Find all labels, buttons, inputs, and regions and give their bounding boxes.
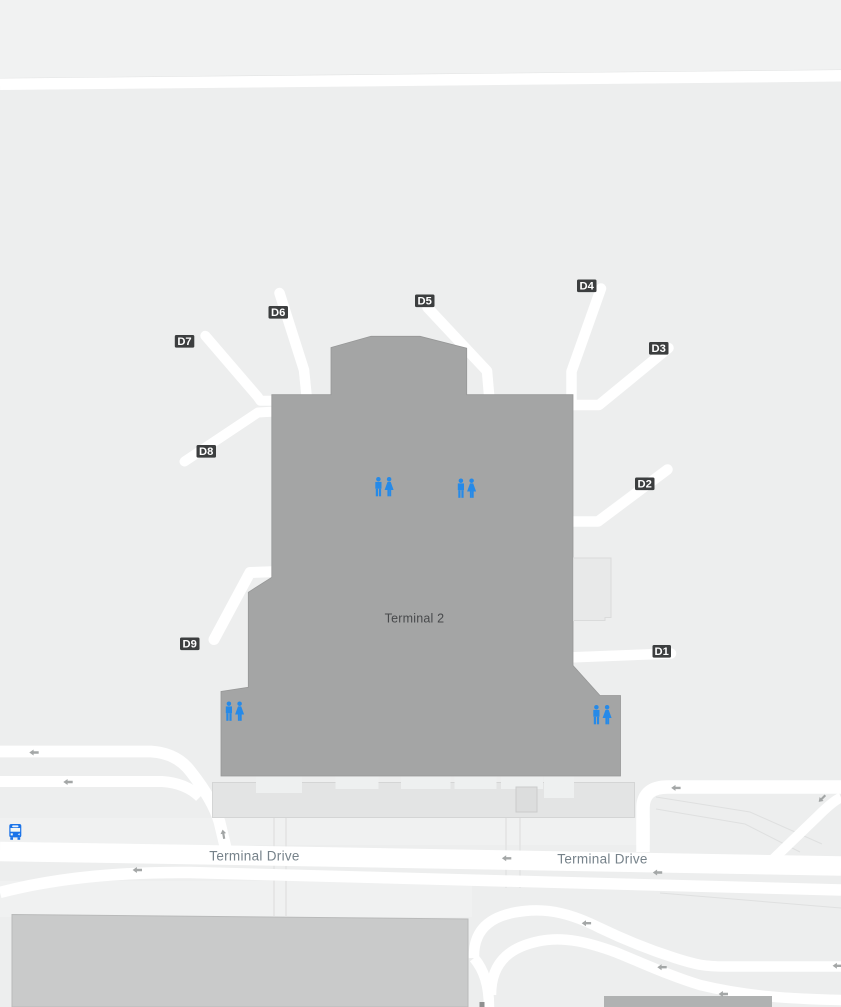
svg-text:D4: D4	[580, 281, 595, 293]
svg-text:D3: D3	[652, 343, 666, 355]
svg-text:D7: D7	[177, 336, 191, 348]
svg-text:D9: D9	[183, 639, 197, 651]
svg-text:Terminal Drive: Terminal Drive	[209, 849, 299, 864]
svg-text:D5: D5	[418, 296, 432, 308]
svg-text:Terminal Drive: Terminal Drive	[557, 852, 647, 867]
svg-text:D8: D8	[199, 446, 213, 458]
svg-text:D2: D2	[638, 479, 652, 491]
svg-text:D6: D6	[271, 307, 285, 319]
svg-text:Terminal 2: Terminal 2	[385, 612, 445, 626]
svg-text:D1: D1	[655, 646, 669, 658]
